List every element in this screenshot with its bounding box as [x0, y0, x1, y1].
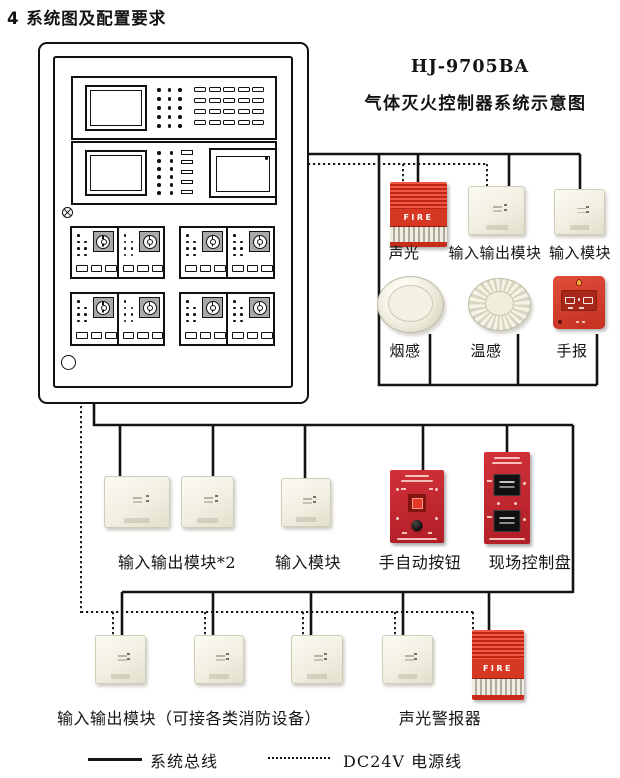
fire-text: FIRE — [403, 213, 433, 222]
zone-keyswitch-dial — [139, 231, 160, 252]
screen-corner-dot — [265, 156, 269, 160]
input-module-label: 输入模块 — [538, 242, 620, 263]
zone-buttons — [123, 265, 164, 272]
legend-power-line-label: DC24V 电源线 — [343, 748, 462, 772]
zone-led-dots — [186, 300, 196, 322]
keyhole-icon — [61, 355, 76, 370]
zone-module — [119, 294, 164, 344]
zone-module — [181, 228, 228, 277]
zone-module — [119, 228, 164, 277]
fire-text: FIRE — [483, 664, 513, 673]
controller-second-unit — [71, 141, 277, 205]
manual-page: 4 系统图及配置要求 — [0, 0, 620, 778]
zone-module — [72, 294, 119, 344]
input-module-device — [554, 189, 605, 235]
legend-solid-line-sample — [88, 758, 142, 761]
heat-detector-device — [468, 278, 531, 331]
manual-call-point-device — [553, 276, 605, 329]
sound-light-alarm-device: FIRE — [390, 182, 447, 247]
manual-auto-label: 手自动按钮 — [361, 549, 479, 573]
zone-control-blocks — [70, 226, 275, 346]
horn-strobe — [390, 226, 447, 242]
io-module-device — [104, 476, 170, 528]
zone-buttons — [123, 332, 164, 339]
io-module-device — [291, 635, 343, 684]
legend-system-bus-label: 系统总线 — [150, 748, 218, 772]
gas-extinguishing-controller — [38, 42, 309, 404]
flame-icon — [576, 279, 582, 286]
sound-light-label: 声光 — [372, 242, 436, 263]
zone-control-block — [70, 226, 165, 279]
horn-ribs — [472, 630, 524, 659]
zone-keyswitch-dial — [249, 297, 270, 318]
sound-light-alarm-device: FIRE — [472, 630, 524, 700]
zone-module — [228, 294, 273, 344]
sound-light-alarm-label: 声光警报器 — [378, 705, 502, 729]
zone-led-dots — [124, 234, 134, 256]
function-key-grid — [194, 87, 264, 125]
io-module-device — [382, 635, 433, 684]
bottom-io-modules-label: 输入输出模块（可接各类消防设备） — [29, 705, 349, 729]
io-module-device — [95, 635, 146, 684]
io-module-x2-label: 输入输出模块*2 — [98, 549, 256, 573]
zone-control-block — [179, 226, 275, 279]
zone-led-dots — [233, 234, 243, 256]
zone-keyswitch-dial — [93, 231, 114, 252]
zone-led-dots — [77, 234, 87, 256]
zone-module — [72, 228, 119, 277]
indicator-led-grid-2 — [157, 151, 173, 195]
smoke-detector-device — [377, 276, 444, 333]
zone-buttons — [185, 332, 226, 339]
zone-buttons — [185, 265, 226, 272]
zone-buttons — [76, 332, 117, 339]
lcd-screen-1 — [85, 85, 147, 131]
controller-front-face — [53, 56, 293, 388]
zone-control-block — [70, 292, 165, 346]
zone-led-dots — [77, 300, 87, 322]
field-control-panel-device — [484, 452, 530, 544]
io-module-device — [194, 635, 244, 684]
zone-keyswitch-dial — [202, 231, 223, 252]
zone-led-dots — [124, 300, 134, 322]
smoke-label: 烟感 — [367, 340, 443, 361]
zone-module — [181, 294, 228, 344]
lcd-screen-3 — [209, 148, 277, 198]
io-module-device — [468, 186, 525, 235]
zone-buttons — [232, 332, 273, 339]
manual-call-label: 手报 — [534, 340, 610, 361]
zone-buttons — [76, 265, 117, 272]
zone-module — [228, 228, 273, 277]
zone-control-block — [179, 292, 275, 346]
zone-keyswitch-dial — [93, 297, 114, 318]
horn-strobe — [472, 678, 524, 695]
zone-keyswitch-dial — [202, 297, 223, 318]
controller-top-unit — [71, 76, 277, 140]
input-module-device — [281, 478, 331, 527]
screw-icon — [62, 207, 73, 218]
io-module-label: 输入输出模块 — [437, 242, 553, 263]
zone-led-dots — [233, 300, 243, 322]
horn-ribs — [390, 182, 447, 209]
zone-keyswitch-dial — [249, 231, 270, 252]
indicator-led-grid-1 — [157, 88, 182, 128]
manual-auto-button-device — [390, 470, 444, 543]
field-panel-label: 现场控制盘 — [469, 549, 591, 573]
input-module-label: 输入模块 — [254, 549, 362, 573]
zone-keyswitch-dial — [139, 297, 160, 318]
io-module-device — [181, 476, 234, 528]
zone-led-dots — [186, 234, 196, 256]
lcd-screen-2 — [85, 150, 147, 196]
legend-dotted-line-sample — [268, 757, 330, 759]
heat-label: 温感 — [448, 340, 524, 361]
key-column — [181, 150, 193, 194]
zone-buttons — [232, 265, 273, 272]
